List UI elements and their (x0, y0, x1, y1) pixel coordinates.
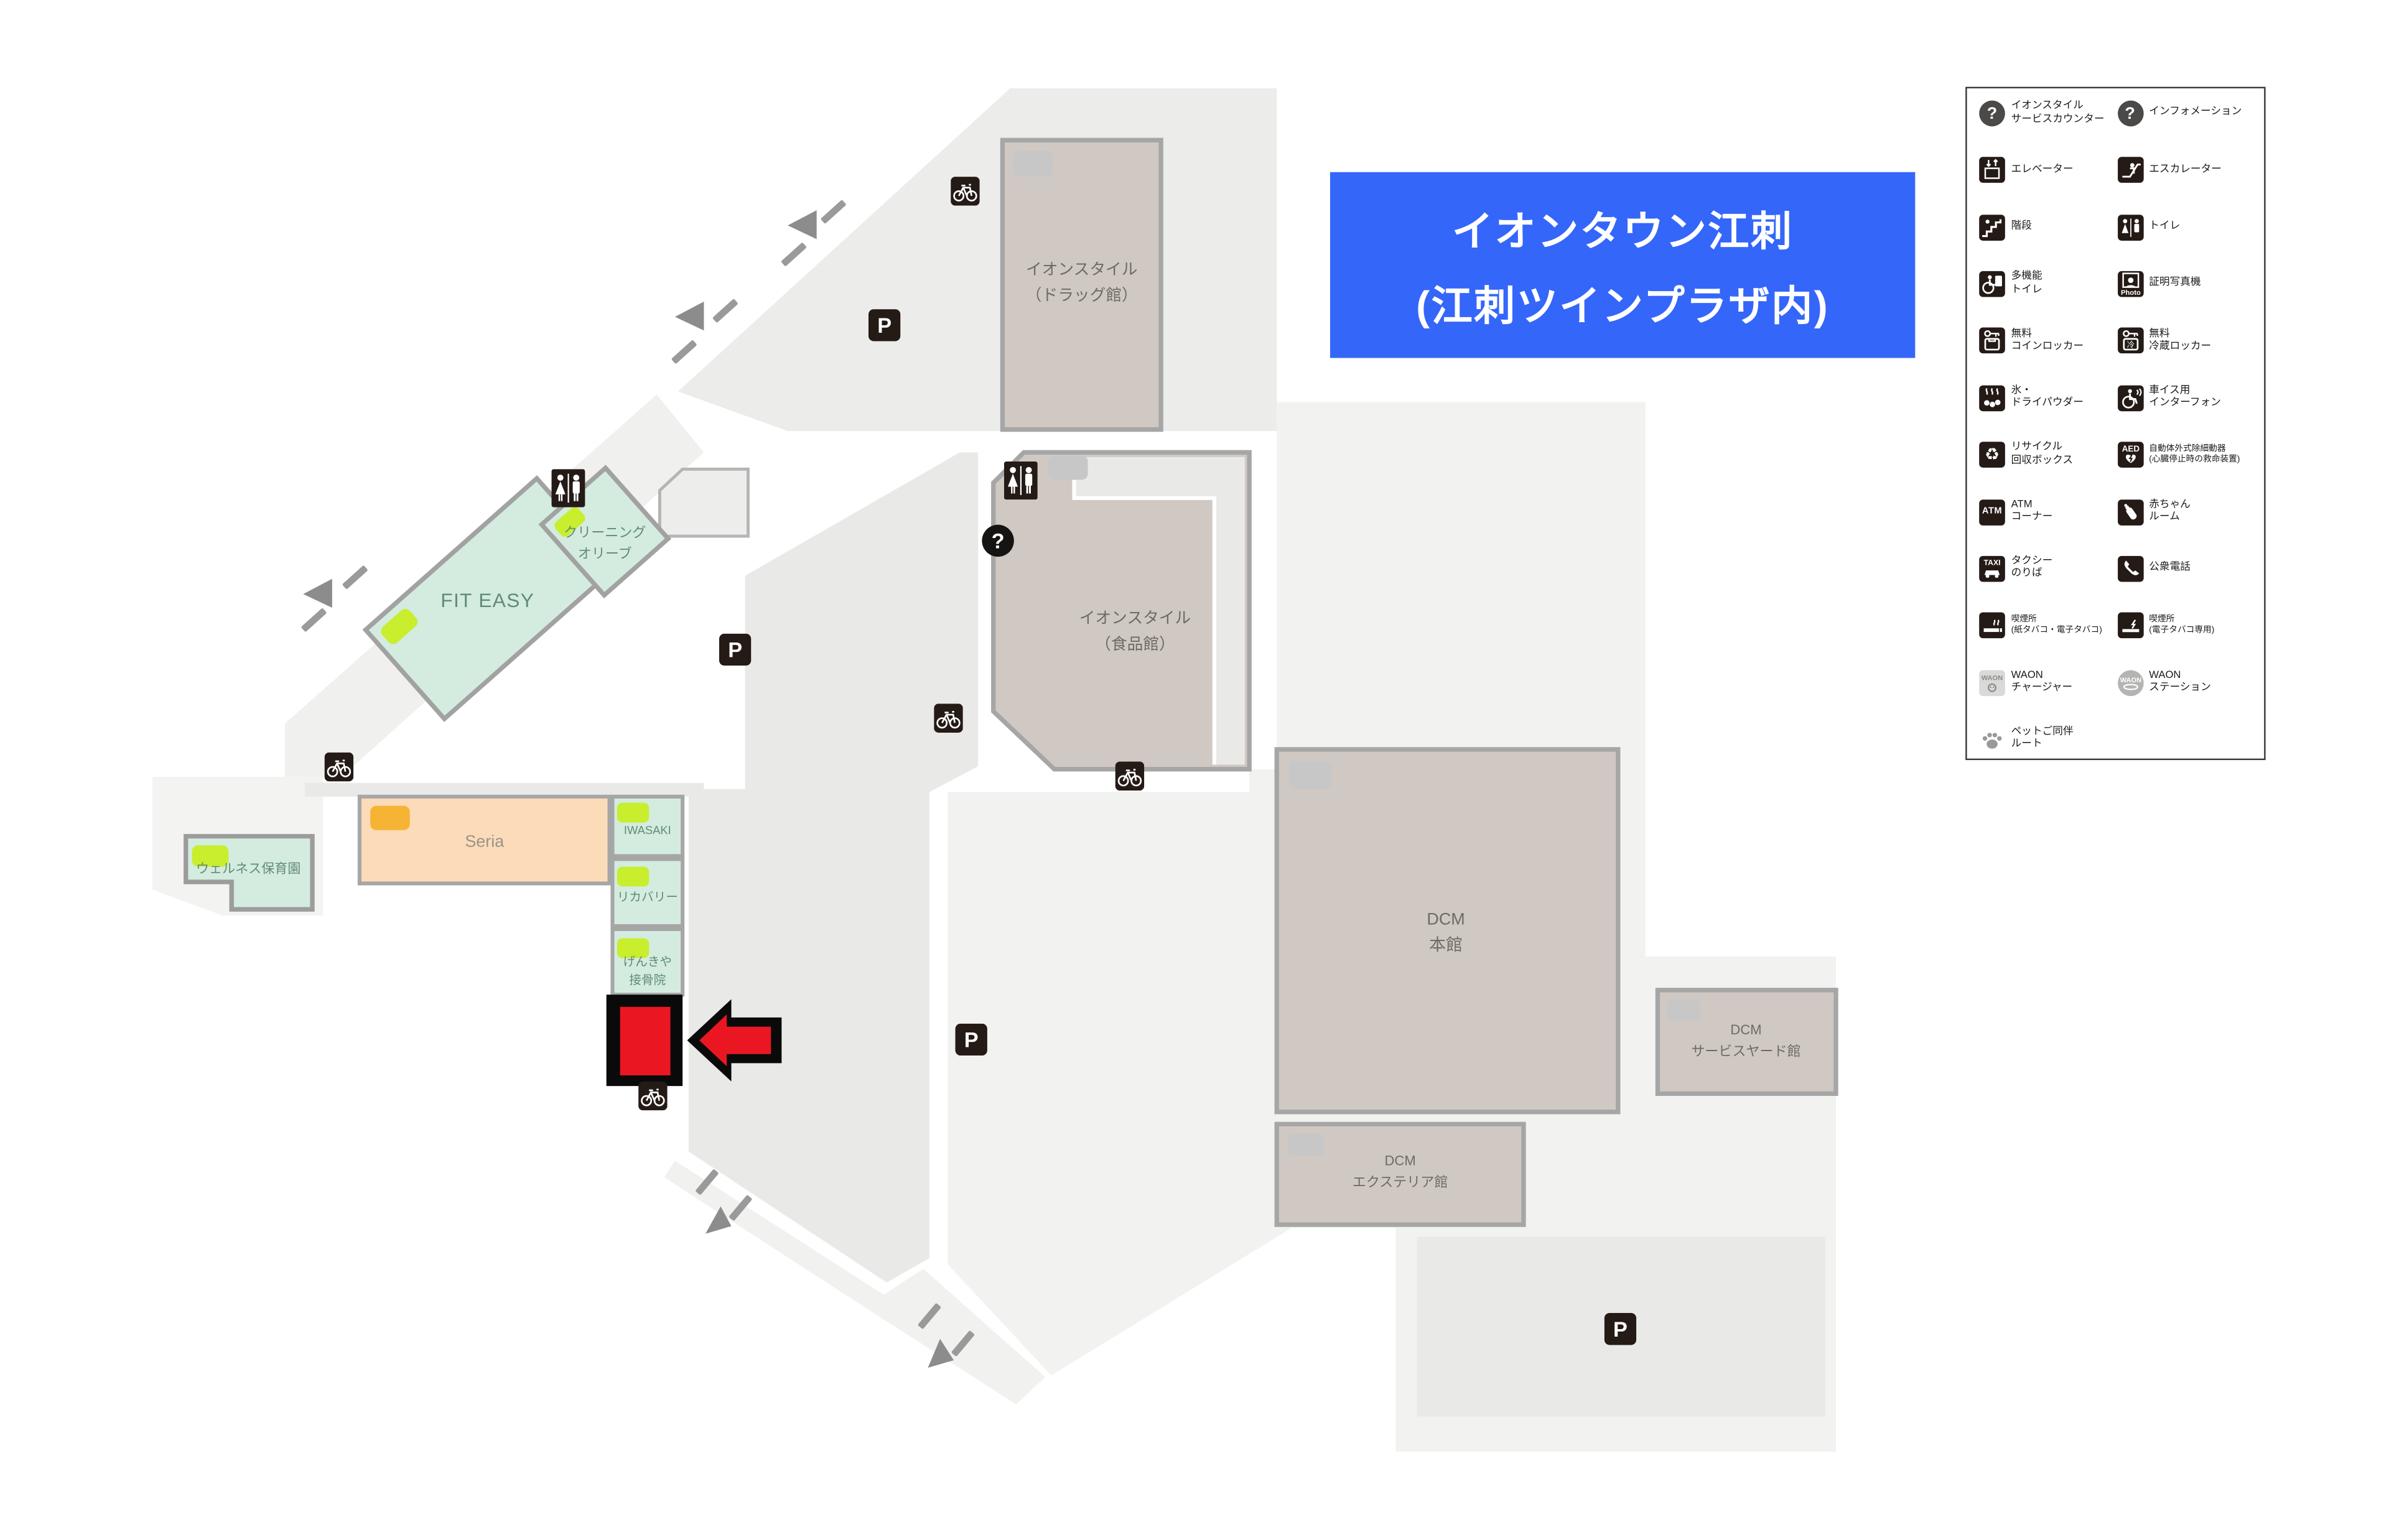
lot-corridor (305, 783, 704, 797)
legend-row: ペットご同伴ルート (1979, 726, 2255, 753)
waon-charger-icon: WAON (1979, 670, 2005, 696)
direction-triangle (303, 579, 332, 608)
legend-item-wheelchair-intercom: 車イス用インターフォン (2117, 385, 2255, 411)
stairs-icon (1979, 215, 2005, 241)
paw-icon (1979, 726, 2005, 753)
legend-row: ? イオンスタイルサービスカウンター ? インフォメーション (1979, 101, 2255, 127)
legend-item-atm: ATM ATMコーナー (1979, 499, 2117, 525)
cold-locker-icon: 冷 (2117, 328, 2143, 355)
entrance-marker-green (192, 845, 229, 866)
legend-item-coin-locker: 無料コインロッカー (1979, 328, 2117, 355)
legend-row: TAXI タクシーのりば 公衆電話 (1979, 556, 2255, 582)
bicycle-icon (638, 1082, 668, 1111)
svg-text:AED: AED (2121, 445, 2139, 454)
svg-text:WAON: WAON (1982, 674, 2003, 681)
legend-item-smoking: 喫煙所(紙タバコ・電子タバコ) (1979, 613, 2117, 639)
legend-row: 氷・ドライパウダー 車イス用インターフォン (1979, 385, 2255, 411)
bicycle-icon (951, 177, 980, 206)
legend-item-service-counter: ? イオンスタイルサービスカウンター (1979, 101, 2117, 127)
legend-row: エレベーター エスカレーター (1979, 157, 2255, 183)
escalator-icon (2117, 157, 2143, 183)
legend-item-waon-charger: WAON WAONチャージャー (1979, 670, 2117, 696)
svg-text:WAON: WAON (2120, 676, 2141, 684)
entrance-marker-gray (1287, 1133, 1324, 1156)
parking-icon (869, 309, 900, 341)
entrance-marker-gray (1048, 455, 1088, 480)
accessible-toilet-icon (1979, 271, 2005, 297)
legend-item-taxi: TAXI タクシーのりば (1979, 556, 2117, 582)
entrance-marker-green (617, 939, 649, 958)
entrance-marker-gray (1667, 1000, 1700, 1021)
lot-top-parking (678, 88, 1277, 431)
atm-icon: ATM (1979, 499, 2005, 525)
legend-row: 喫煙所(紙タバコ・電子タバコ) 喫煙所(電子タバコ専用) (1979, 613, 2255, 639)
question-icon: ? (1979, 101, 2005, 127)
legend-item-cold-locker: 冷 無料冷蔵ロッカー (2117, 328, 2255, 355)
legend-item-escalator: エスカレーター (2117, 157, 2255, 183)
bicycle-icon (1115, 761, 1145, 791)
toilet-icon (2117, 215, 2143, 241)
map-title: イオンタウン江刺 (江刺ツインプラザ内) (1330, 172, 1915, 358)
bicycle-icon (325, 753, 354, 782)
legend-item-waon-station: WAON WAONステーション (2117, 670, 2255, 696)
legend-item-baby-room: 赤ちゃんルーム (2117, 499, 2255, 525)
legend-item-toilet: トイレ (2117, 215, 2255, 241)
legend-item-recycle: ♻ リサイクル回収ボックス (1979, 442, 2117, 468)
waon-station-icon: WAON (2117, 670, 2143, 696)
map-stage: P ? (0, 0, 2389, 1540)
recycle-icon: ♻ (1979, 442, 2005, 468)
floor-map-page: P ? (0, 0, 2389, 1540)
legend-item-photo-booth: Photo 証明写真機 (2117, 271, 2255, 297)
legend-item-ice: 氷・ドライパウダー (1979, 385, 2117, 411)
legend-item-public-phone: 公衆電話 (2117, 556, 2255, 582)
legend-item-multifunction-toilet: 多機能トイレ (1979, 271, 2117, 297)
direction-triangle (675, 302, 704, 331)
toilet-icon (1004, 462, 1038, 499)
svg-text:Photo: Photo (2120, 289, 2140, 297)
public-phone-icon (2117, 556, 2143, 582)
question-icon: ? (2117, 101, 2143, 127)
legend-item-aed: AED 自動体外式除細動器(心臓停止時の救命装置) (2117, 442, 2255, 468)
legend-row: 多機能トイレ Photo 証明写真機 (1979, 271, 2255, 297)
direction-triangle (788, 210, 817, 239)
coin-locker-icon (1979, 328, 2005, 355)
parking-icon (956, 1024, 987, 1055)
baby-room-icon (2117, 499, 2143, 525)
legend-row: ATM ATMコーナー 赤ちゃんルーム (1979, 499, 2255, 525)
map-title-line1: イオンタウン江刺 (1452, 198, 1794, 257)
aed-icon: AED (2117, 442, 2143, 468)
taxi-icon: TAXI (1979, 556, 2005, 582)
entrance-marker-gray (1013, 151, 1053, 177)
photo-booth-icon: Photo (2117, 271, 2143, 297)
legend-row: 無料コインロッカー 冷 無料冷蔵ロッカー (1979, 328, 2255, 355)
legend-row: 階段 トイレ (1979, 215, 2255, 241)
gate-west (301, 565, 368, 633)
legend-spacer (2117, 726, 2255, 753)
legend-item-pet-route: ペットご同伴ルート (1979, 726, 2117, 753)
legend-item-elevator: エレベーター (1979, 157, 2117, 183)
elevator-icon (1979, 157, 2005, 183)
legend-item-e-smoking: 喫煙所(電子タバコ専用) (2117, 613, 2255, 639)
parking-icon (1604, 1313, 1636, 1345)
bicycle-icon (934, 703, 963, 733)
entrance-marker-green (617, 803, 649, 823)
legend-row: WAON WAONチャージャー WAON WAONステーション (1979, 670, 2255, 696)
highlight-red-box (620, 1007, 671, 1075)
ice-icon (1979, 385, 2005, 411)
e-smoking-icon (2117, 613, 2143, 639)
entrance-marker-orange (370, 806, 410, 830)
wheelchair-intercom-icon (2117, 385, 2143, 411)
entrance-marker-gray (1289, 761, 1332, 789)
map-title-line2: (江刺ツインプラザ内) (1416, 272, 1829, 332)
building-dcm-main (1277, 749, 1618, 1112)
svg-text:冷: 冷 (2126, 341, 2134, 350)
lot-small-pentagon (659, 469, 748, 536)
building-aeon-drug (1002, 140, 1161, 429)
entrance-marker-green (617, 866, 649, 886)
toilet-icon (552, 469, 585, 507)
legend-row: ♻ リサイクル回収ボックス AED 自動体外式除細動器(心臓停止時の救命装置) (1979, 442, 2255, 468)
legend-panel: ? イオンスタイルサービスカウンター ? インフォメーション エレベーター エス… (1965, 87, 2265, 760)
lot-central-parking (689, 452, 978, 1283)
svg-text:TAXI: TAXI (1984, 558, 2001, 567)
legend-item-information: ? インフォメーション (2117, 101, 2255, 127)
legend-item-stairs: 階段 (1979, 215, 2117, 241)
parking-icon (719, 634, 751, 666)
service-counter-icon (982, 525, 1013, 557)
smoking-icon (1979, 613, 2005, 639)
